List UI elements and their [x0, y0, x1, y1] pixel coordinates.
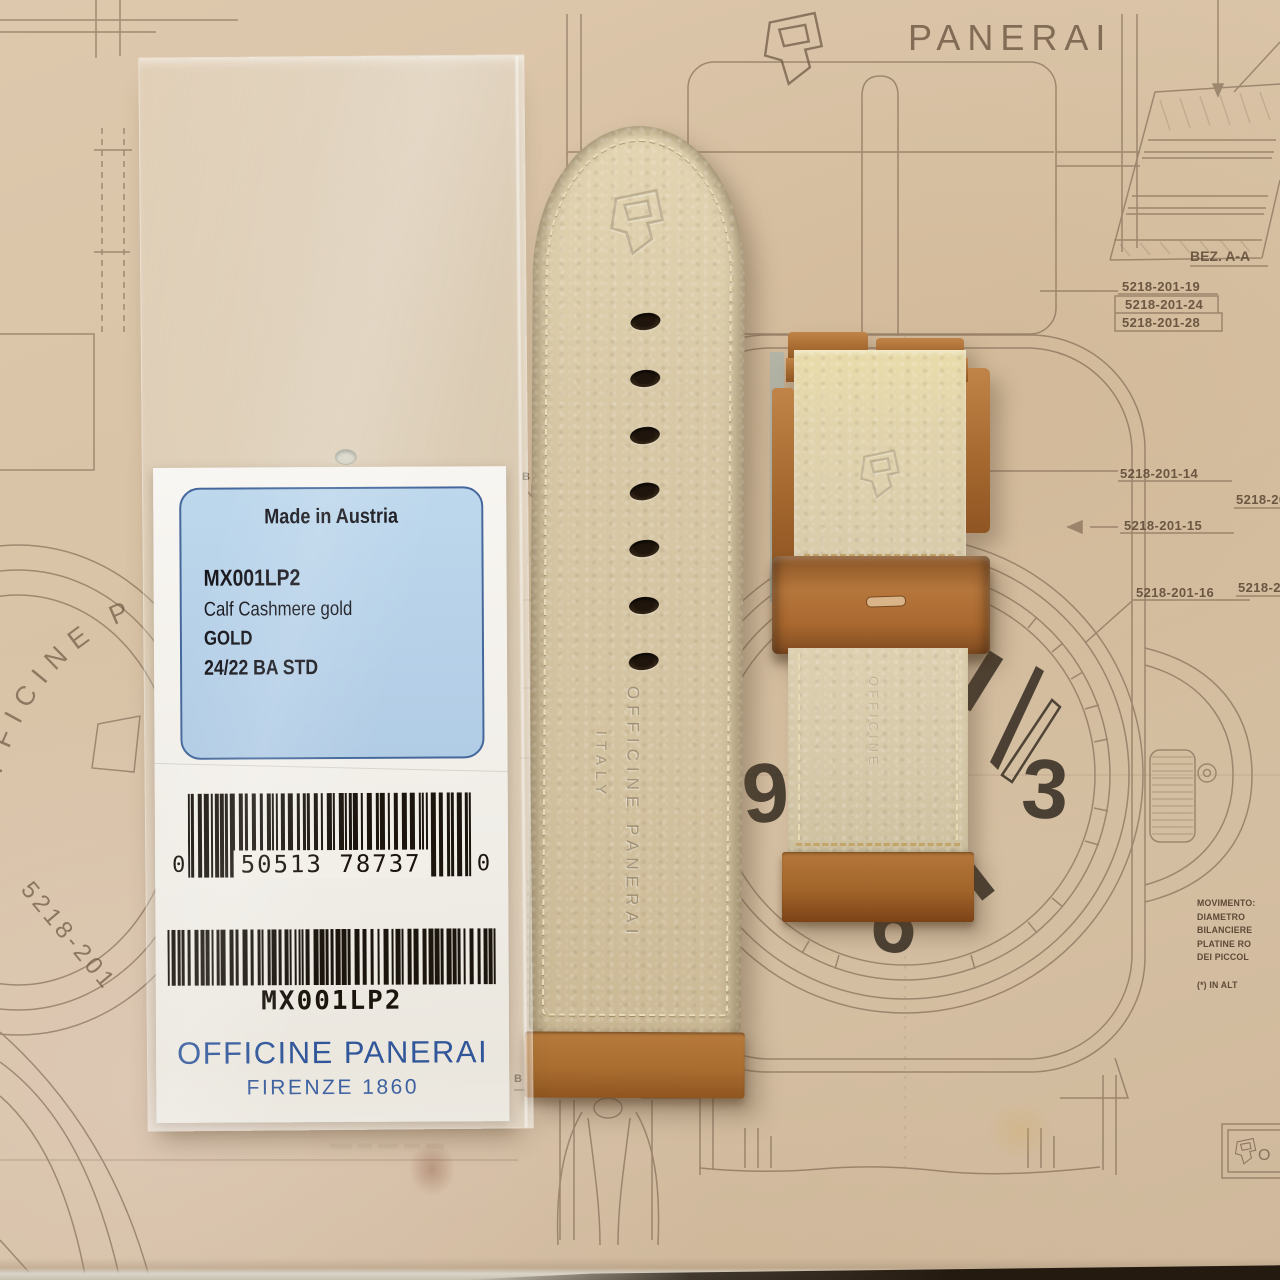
note-line: BILANCIERE: [1197, 924, 1273, 938]
color-text: GOLD: [204, 624, 253, 653]
label-brand-block: OFFICINE PANERAI FIRENZE 1860: [156, 1034, 509, 1101]
short-strap-lining-lower: OFFICINE: [788, 648, 968, 854]
op-logo-embossed-icon: [601, 184, 673, 260]
stitch-line: [796, 843, 960, 846]
short-strap-lining: [794, 350, 966, 564]
dial-arc-text: OFFICINE PA: [0, 0, 140, 806]
op-logo-icon: [765, 13, 822, 84]
stitch-line: [798, 654, 800, 840]
part-number: 5218-201-14: [1120, 466, 1198, 481]
upc-barcode: 0 50513 78737 0: [169, 792, 493, 878]
note-line: DEI PICCOL: [1197, 951, 1273, 965]
note-line: PLATINE RO: [1197, 938, 1273, 952]
op-logo-titleblock-icon: [1236, 1139, 1256, 1164]
photo-stage: PANERAI BEZ. A-A 5218-201-19 5218-201-24…: [0, 0, 1280, 1280]
blueprint-brand-text: PANERAI: [908, 17, 1112, 58]
long-strap-embossed-text: OFFICINE PANERAI: [621, 686, 642, 940]
upc-left-digit: 0: [169, 855, 188, 878]
upc-digits: 50513 78737: [234, 850, 429, 879]
brand-subtext: FIRENZE 1860: [156, 1075, 509, 1101]
sku-barcode-text: MX001LP2: [168, 985, 496, 1017]
short-strap-embossed-text: OFFICINE: [866, 676, 881, 769]
short-strap-side-leather: [772, 388, 794, 573]
brand-text: OFFICINE PANERAI: [156, 1034, 509, 1072]
diagonal-part-number: 5218-201: [15, 877, 121, 997]
barcode-bars: [167, 928, 495, 986]
blueprint-notes: MOVIMENTO: DIAMETRO BILANCIERE PLATINE R…: [1197, 897, 1280, 1023]
section-label: BEZ. A-A: [1190, 248, 1250, 264]
bag-hang-hole: [335, 449, 357, 465]
paper-stain: [400, 1132, 464, 1206]
long-strap: OFFICINE PANERAI ITALY: [528, 125, 745, 1098]
size-text: 24/22 BA STD: [204, 653, 318, 683]
short-strap: OFFICINE: [770, 328, 995, 926]
upc-right-digit: 0: [474, 853, 493, 876]
dial-number-three: 3: [1019, 741, 1071, 837]
keeper-loop: [772, 556, 990, 654]
title-block-text: O: [1258, 1147, 1270, 1164]
plastic-bag: Made in Austria MX001LP2 Calf Cashmere g…: [138, 54, 533, 1131]
part-number: 5218-201-15: [1124, 518, 1202, 533]
part-number: 5218-201-16: [1136, 585, 1214, 600]
part-number: 5218-201-19: [1122, 279, 1200, 294]
op-logo-embossed-icon: [854, 446, 906, 502]
material-text: Calf Cashmere gold: [204, 595, 353, 625]
part-number-edge: 5218-20: [1238, 580, 1280, 595]
keeper-stitch: [866, 595, 906, 607]
made-in-text: Made in Austria: [264, 505, 398, 530]
long-strap-embossed-origin: ITALY: [592, 731, 609, 801]
part-number-edge: 5218-201: [1236, 492, 1280, 507]
label-crease: [155, 763, 508, 772]
note-line: MOVIMENTO:: [1197, 897, 1273, 911]
note-line: DIAMETRO: [1197, 911, 1273, 925]
long-strap-leather: OFFICINE PANERAI ITALY: [529, 125, 746, 1032]
long-strap-lug-end: [524, 1031, 744, 1098]
product-label: Made in Austria MX001LP2 Calf Cashmere g…: [153, 466, 509, 1123]
short-strap-lug-end: [782, 852, 974, 922]
sku-barcode: MX001LP2: [167, 928, 495, 1017]
part-number: 5218-201-24: [1125, 297, 1203, 312]
part-number: 5218-201-28: [1122, 315, 1200, 330]
note-line: (*) IN ALT: [1197, 979, 1273, 993]
label-info-box: Made in Austria MX001LP2 Calf Cashmere g…: [179, 486, 484, 760]
paper-stain: [975, 1090, 1065, 1170]
barcode-bars: 50513 78737: [188, 792, 474, 877]
stitch-line: [956, 654, 958, 840]
sku-text: MX001LP2: [204, 563, 301, 593]
